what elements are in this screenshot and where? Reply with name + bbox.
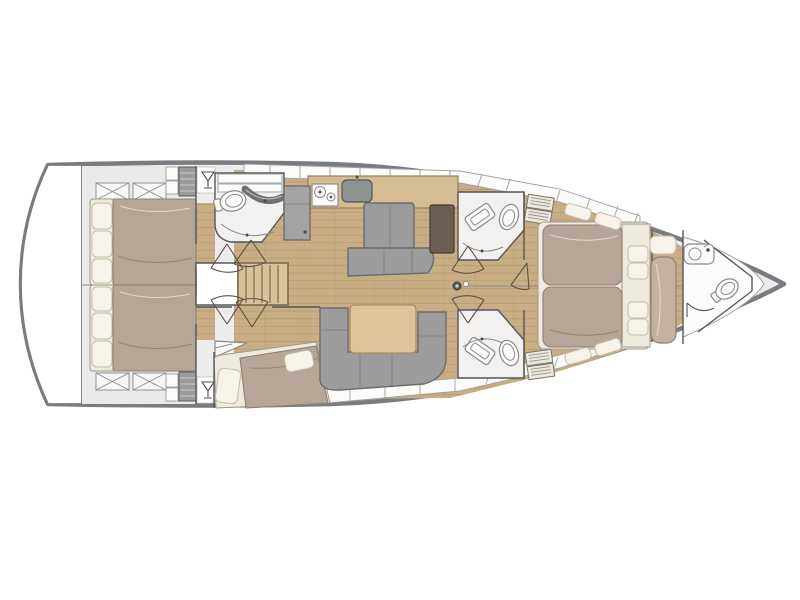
aft-corridor-floor-port (196, 203, 215, 263)
engine-box (196, 263, 238, 305)
galley-island (364, 203, 414, 249)
aft-cabin-port (90, 199, 196, 285)
vanity-shelf (218, 174, 282, 183)
pillow (628, 263, 648, 279)
bed-duvet (543, 287, 622, 347)
pillow (628, 246, 648, 262)
louver-locker-icon (524, 194, 554, 225)
bow-section (650, 230, 764, 344)
louver-locker-icon (525, 349, 555, 379)
pillow (92, 313, 112, 339)
pillow (92, 231, 112, 257)
bow-shelf-cushion (650, 236, 676, 254)
pillow (92, 287, 112, 311)
pillow (92, 259, 112, 283)
transom-platform (21, 165, 82, 404)
pillow (215, 368, 242, 405)
pillow (92, 203, 112, 229)
yacht-floor-plan (0, 0, 800, 600)
bow-seat (651, 257, 676, 343)
yacht-floor-plan-canvas (0, 0, 800, 600)
pillow (628, 319, 648, 335)
nav-seat (348, 248, 434, 276)
chart-table (430, 205, 454, 253)
aft-corridor-floor-starboard (196, 306, 215, 340)
salon-dinette (320, 305, 446, 390)
aft-cabin-starboard (90, 285, 196, 371)
pillow (92, 341, 112, 367)
pillow (628, 302, 648, 318)
stove-icon (312, 184, 338, 206)
bed-duvet (543, 225, 622, 285)
sink-icon (684, 244, 714, 264)
salon-table (350, 305, 416, 353)
galley-sink-icon (342, 176, 372, 203)
